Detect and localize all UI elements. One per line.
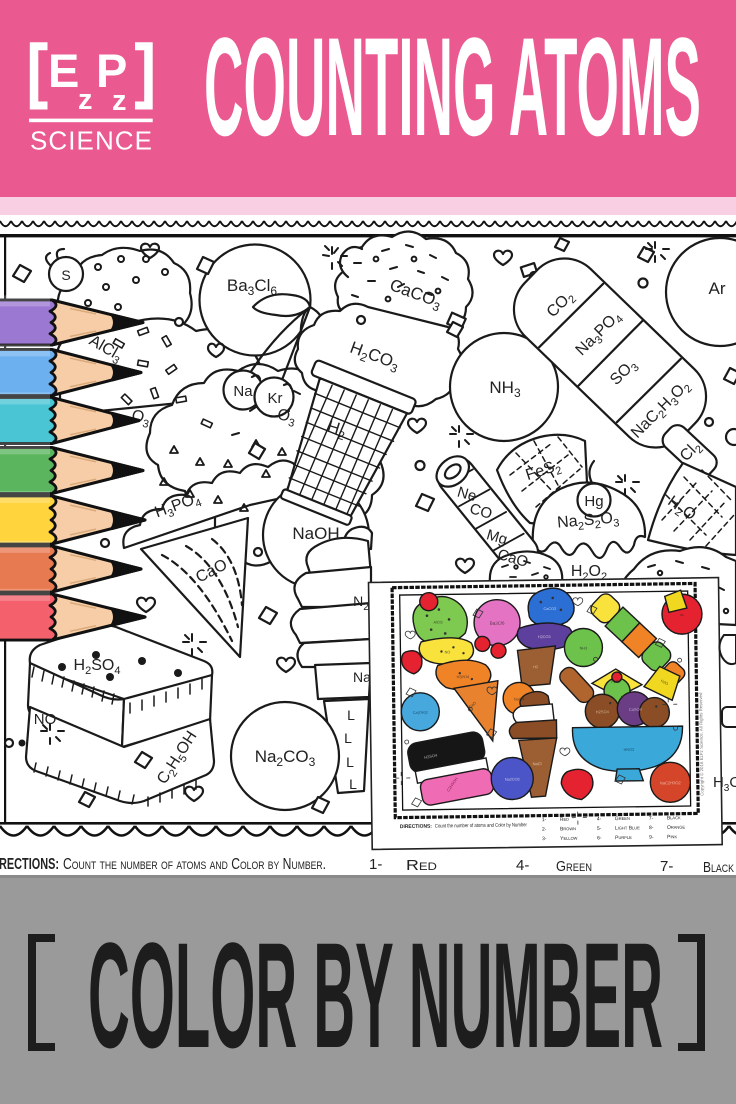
svg-text:NaOH: NaOH <box>514 697 525 701</box>
svg-text:4-: 4- <box>597 816 602 822</box>
svg-text:FeS2: FeS2 <box>611 680 620 684</box>
svg-text:CaSO4: CaSO4 <box>629 707 643 712</box>
svg-text:H2CO3: H2CO3 <box>538 635 551 639</box>
svg-text:Kr: Kr <box>268 390 283 407</box>
svg-text:L: L <box>346 754 354 770</box>
svg-text:CaCO3: CaCO3 <box>544 607 557 611</box>
svg-text:S: S <box>61 267 70 283</box>
svg-text:7-: 7- <box>660 858 673 875</box>
svg-text:1-: 1- <box>542 817 547 823</box>
svg-text:HNO3: HNO3 <box>624 748 635 752</box>
svg-text:Green: Green <box>556 858 592 875</box>
svg-text:NH3: NH3 <box>580 646 588 650</box>
svg-text:NaOH: NaOH <box>292 524 339 543</box>
svg-text:H3PO4: H3PO4 <box>457 675 470 679</box>
svg-text:L: L <box>344 730 352 746</box>
svg-text:L: L <box>347 707 355 723</box>
svg-text:AlCl3: AlCl3 <box>433 620 442 624</box>
svg-text:H2: H2 <box>533 665 538 669</box>
svg-text:Count the number of atoms and: Count the number of atoms and Color by N… <box>63 856 326 873</box>
svg-text:6-: 6- <box>597 835 602 841</box>
svg-text:NaC2H3O2: NaC2H3O2 <box>660 780 682 785</box>
svg-text:NaCl: NaCl <box>533 761 542 766</box>
svg-text:Ba3Cl6: Ba3Cl6 <box>490 621 505 626</box>
svg-text:L: L <box>349 776 357 792</box>
svg-text:NO: NO <box>445 650 451 654</box>
svg-text:Black: Black <box>703 859 735 875</box>
svg-text:COLOR BY NUMBER: COLOR BY NUMBER <box>88 911 663 1079</box>
svg-text:7-: 7- <box>649 816 654 822</box>
svg-text:Na: Na <box>233 383 253 400</box>
svg-text:Na2CO3: Na2CO3 <box>505 777 520 781</box>
svg-text:Ca(OH)2: Ca(OH)2 <box>413 711 428 715</box>
svg-text:1-: 1- <box>369 856 382 873</box>
svg-text:Ar: Ar <box>709 279 726 298</box>
svg-text:Red: Red <box>406 857 437 874</box>
svg-text:Na: Na <box>353 669 371 685</box>
svg-text:9-: 9- <box>649 835 654 841</box>
svg-text:Na2CO3: Na2CO3 <box>255 747 316 769</box>
svg-text:Hg: Hg <box>584 493 603 510</box>
svg-text:5-: 5- <box>597 826 602 832</box>
svg-text:COUNTING ATOMS: COUNTING ATOMS <box>204 8 701 165</box>
svg-text:2-: 2- <box>542 827 547 833</box>
svg-text:RECTIONS:: RECTIONS: <box>0 856 59 873</box>
svg-text:NO: NO <box>34 711 57 728</box>
svg-text:H2SO4: H2SO4 <box>596 709 610 714</box>
svg-text:3-: 3- <box>542 836 547 842</box>
svg-text:8-: 8- <box>649 825 654 831</box>
svg-text:DIRECTIONS:: DIRECTIONS: <box>400 824 432 830</box>
svg-text:4-: 4- <box>516 857 529 874</box>
